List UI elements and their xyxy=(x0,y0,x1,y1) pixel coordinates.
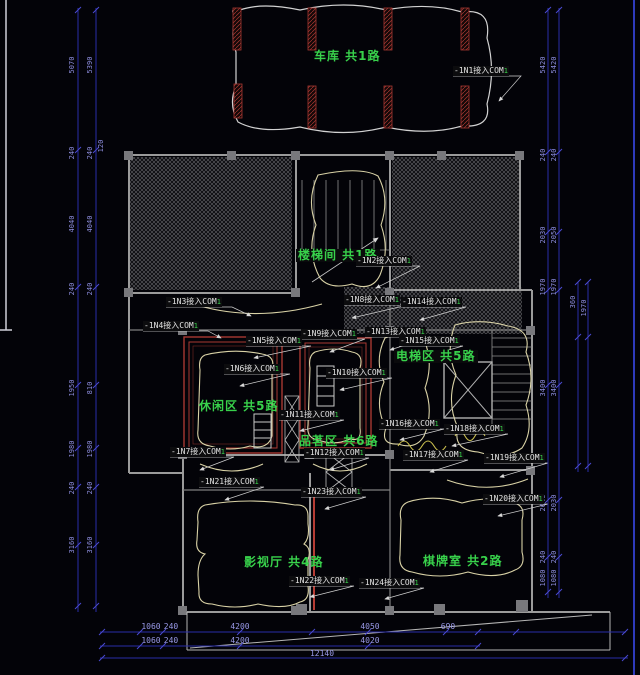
dim-text: 4200 xyxy=(230,622,249,631)
dim-text: 5390 xyxy=(86,57,94,74)
dim-text: 5070 xyxy=(68,57,76,74)
room-label-leisure: 休闲区 共5路 xyxy=(199,400,279,413)
dim-text: 1980 xyxy=(86,441,94,458)
dim-text: 4050 xyxy=(360,622,379,631)
circuit-label-1n3: -1N3接入COM1 xyxy=(166,297,222,307)
dim-text: 240 xyxy=(68,283,76,296)
circuit-label-1n11: -1N11接入COM1 xyxy=(279,410,340,420)
dim-text: 810 xyxy=(86,382,94,395)
room-label-cinema: 影视厅 共4路 xyxy=(244,556,324,569)
dim-text: 1970 xyxy=(550,279,558,296)
dim-text: 240 xyxy=(539,149,547,162)
circuit-label-1n12: -1N12接入COM1 xyxy=(304,448,365,458)
circuit-label-1n8: -1N8接入COM1 xyxy=(344,295,400,305)
dim-text: 12140 xyxy=(310,649,334,658)
dim-text: 240 xyxy=(550,149,558,162)
dim-text: 3160 xyxy=(86,537,94,554)
hatch-areas xyxy=(128,157,522,334)
dim-text: 240 xyxy=(164,622,179,631)
circuit-label-1n21: -1N21接入COM1 xyxy=(199,477,260,487)
circuit-label-1n10: -1N10接入COM1 xyxy=(326,368,387,378)
dimension-texts: 5070 240 4040 240 1950 1980 240 3160 539… xyxy=(68,57,588,658)
circuit-label-1n18: -1N18接入COM1 xyxy=(444,424,505,434)
dim-text: 1080 xyxy=(550,570,558,587)
circuit-label-1n9: -1N9接入COM1 xyxy=(301,329,357,339)
cad-drawing-canvas[interactable]: 5070 240 4040 240 1950 1980 240 3160 539… xyxy=(0,0,640,675)
dim-text: 1970 xyxy=(580,300,588,317)
dim-text: 4200 xyxy=(230,636,249,645)
dim-text: 3400 xyxy=(539,380,547,397)
dim-text: 5420 xyxy=(539,57,547,74)
dim-text: 240 xyxy=(86,482,94,495)
circuit-label-1n20: -1N20接入COM1 xyxy=(483,494,544,504)
dim-text: 1970 xyxy=(539,279,547,296)
circuit-label-1n2: -1N2接入COM1 xyxy=(356,256,412,266)
dim-text: 1950 xyxy=(68,380,76,397)
circuit-label-1n14: -1N14接入COM1 xyxy=(401,297,462,307)
dim-text: 120 xyxy=(97,140,105,153)
dim-text: 240 xyxy=(539,551,547,564)
dim-text: 240 xyxy=(164,636,179,645)
circuit-label-1n19: -1N19接入COM1 xyxy=(484,453,545,463)
circuit-label-1n24: -1N24接入COM1 xyxy=(359,578,420,588)
dim-text: 2050 xyxy=(550,227,558,244)
room-label-garage: 车库 共1路 xyxy=(314,50,381,63)
circuit-label-1n23: -1N23接入COM1 xyxy=(301,487,362,497)
dim-text: 4040 xyxy=(86,216,94,233)
circuit-label-1n4: -1N4接入COM1 xyxy=(143,321,199,331)
circuit-label-1n1: -1N1接入COM1 xyxy=(453,66,509,76)
circuit-label-1n16: -1N16接入COM1 xyxy=(379,419,440,429)
dim-text: 690 xyxy=(441,622,456,631)
dim-text: 1980 xyxy=(68,441,76,458)
dim-text: 3160 xyxy=(68,537,76,554)
circuit-label-1n17: -1N17接入COM1 xyxy=(403,450,464,460)
circuit-label-1n7: -1N7接入COM1 xyxy=(170,447,226,457)
dim-text: 240 xyxy=(86,147,94,160)
circuit-label-1n6: -1N6接入COM1 xyxy=(224,364,280,374)
dim-text: 1080 xyxy=(539,570,547,587)
room-label-tea: 品茗区 共6路 xyxy=(299,435,379,448)
dim-text: 4040 xyxy=(68,216,76,233)
dim-text: 3400 xyxy=(550,380,558,397)
dim-text: 360 xyxy=(569,296,577,309)
dim-text: 1060 xyxy=(141,636,160,645)
dim-text: 1060 xyxy=(141,622,160,631)
dim-text: 240 xyxy=(68,147,76,160)
room-label-elevator: 电梯区 共5路 xyxy=(394,350,478,363)
circuit-label-1n22: -1N22接入COM1 xyxy=(289,576,350,586)
dim-text: 240 xyxy=(68,482,76,495)
dim-text: 2030 xyxy=(539,227,547,244)
circuit-label-1n15: -1N15接入COM1 xyxy=(399,336,460,346)
circuit-label-1n5: -1N5接入COM1 xyxy=(246,336,302,346)
dim-text: 240 xyxy=(550,551,558,564)
dim-text: 240 xyxy=(86,283,94,296)
dim-text: 4020 xyxy=(360,636,379,645)
dim-text: 5420 xyxy=(550,57,558,74)
dim-text: 2030 xyxy=(550,495,558,512)
room-label-chess: 棋牌室 共2路 xyxy=(423,555,503,568)
